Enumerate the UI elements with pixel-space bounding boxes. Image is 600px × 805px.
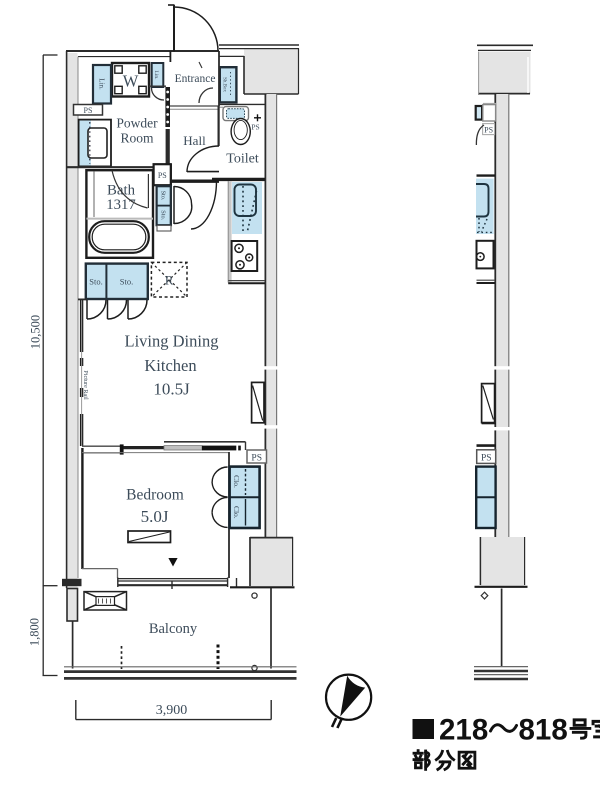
svg-text:Sto.: Sto. [159, 191, 166, 201]
svg-text:Sto.: Sto. [120, 277, 133, 287]
svg-text:PS: PS [251, 454, 262, 464]
svg-text:5.0J: 5.0J [141, 507, 169, 526]
svg-text:PS: PS [484, 125, 493, 134]
svg-text:Clo.: Clo. [232, 475, 241, 488]
svg-text:Hall: Hall [183, 133, 206, 148]
svg-text:Powder: Powder [116, 116, 158, 131]
svg-text:Kitchen: Kitchen [144, 356, 196, 375]
svg-text:Living Dining: Living Dining [125, 332, 219, 351]
svg-text:Lin.: Lin. [98, 78, 106, 90]
svg-text:Entrance: Entrance [175, 73, 216, 85]
svg-text:Toilet: Toilet [226, 152, 259, 167]
svg-text:Picture Rail: Picture Rail [82, 370, 89, 400]
svg-text:R: R [165, 274, 174, 288]
svg-text:Sto.: Sto. [89, 277, 102, 287]
svg-text:10.5J: 10.5J [153, 380, 190, 399]
svg-text:PS: PS [481, 454, 492, 464]
svg-text:Bedroom: Bedroom [126, 487, 184, 504]
svg-text:Sto.: Sto. [159, 210, 166, 220]
svg-text:Clo.: Clo. [232, 506, 241, 519]
svg-text:PS: PS [84, 106, 93, 115]
svg-text:Balcony: Balcony [149, 621, 198, 637]
svg-text:818: 818 [519, 714, 568, 747]
svg-text:1317: 1317 [106, 197, 136, 213]
svg-text:Sh.Box: Sh.Box [222, 77, 227, 92]
svg-text:10,500: 10,500 [29, 315, 43, 349]
svg-text:1,800: 1,800 [28, 618, 42, 646]
svg-text:Room: Room [120, 131, 154, 146]
svg-text:Lin.: Lin. [153, 70, 159, 80]
svg-text:3,900: 3,900 [156, 703, 188, 718]
svg-text:218: 218 [439, 714, 488, 747]
svg-text:W: W [123, 72, 139, 91]
svg-text:PS: PS [158, 171, 167, 180]
svg-text:PS: PS [251, 123, 259, 132]
